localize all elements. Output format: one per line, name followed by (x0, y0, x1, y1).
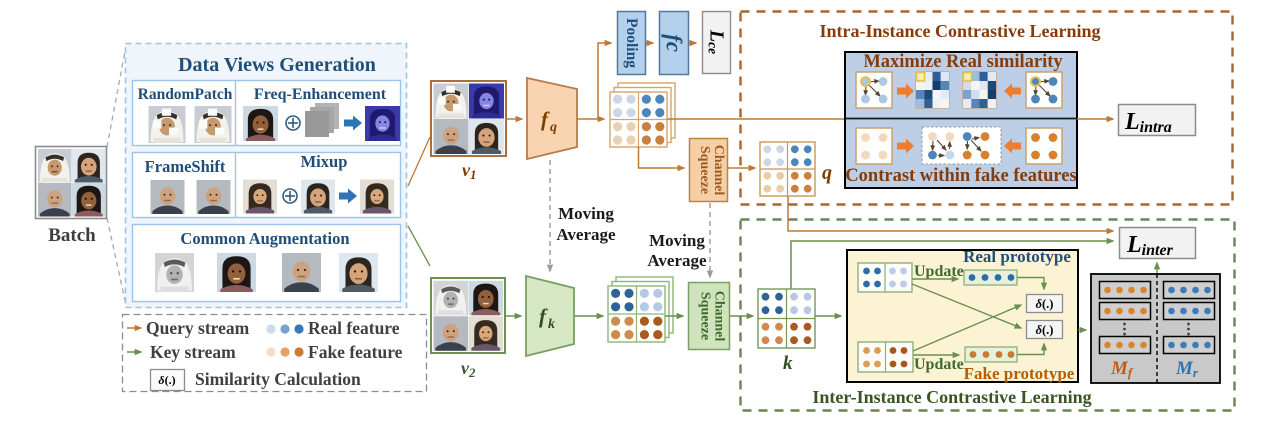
svg-text:Contrast within fake features: Contrast within fake features (845, 166, 1076, 186)
svg-text:v1: v1 (462, 160, 477, 182)
svg-text:Average: Average (556, 225, 616, 244)
svg-text:Real feature: Real feature (308, 318, 400, 338)
svg-text:Moving: Moving (649, 231, 705, 250)
svg-text:δ(.): δ(.) (1036, 323, 1054, 337)
svg-text:δ(.): δ(.) (158, 373, 175, 387)
svg-text:k: k (783, 353, 793, 374)
svg-text:Pooling: Pooling (623, 18, 640, 68)
svg-text:FrameShift: FrameShift (145, 157, 226, 176)
svg-text:fc: fc (662, 34, 687, 52)
svg-text:Average: Average (647, 251, 707, 270)
svg-text:q: q (822, 162, 832, 184)
svg-text:δ(.): δ(.) (1036, 297, 1054, 311)
svg-text:ChannelSqueeze: ChannelSqueeze (698, 291, 727, 342)
svg-text:Inter-Instance Contrastive Lea: Inter-Instance Contrastive Learning (812, 387, 1091, 407)
svg-text:Moving: Moving (558, 204, 614, 223)
svg-text:Maximize Real similarity: Maximize Real similarity (863, 52, 1063, 72)
svg-text:RandomPatch: RandomPatch (138, 86, 233, 103)
svg-text:Update: Update (914, 263, 964, 280)
svg-text:Batch: Batch (48, 225, 96, 246)
svg-text:Similarity Calculation: Similarity Calculation (195, 369, 361, 389)
svg-text:Update: Update (914, 356, 964, 373)
svg-text:Intra-Instance Contrastive Lea: Intra-Instance Contrastive Learning (820, 21, 1101, 41)
svg-text:Mixup: Mixup (301, 152, 348, 171)
svg-text:Key stream: Key stream (150, 342, 236, 362)
svg-text:Query stream: Query stream (146, 318, 250, 338)
svg-text:Fake feature: Fake feature (308, 342, 403, 362)
svg-text:Real prototype: Real prototype (963, 247, 1071, 266)
svg-text:Fake prototype: Fake prototype (964, 364, 1075, 383)
svg-text:Freq-Enhancement: Freq-Enhancement (254, 86, 387, 103)
svg-text:ChannelSqueeze: ChannelSqueeze (697, 145, 726, 196)
svg-text:Data Views Generation: Data Views Generation (178, 54, 376, 76)
svg-text:v2: v2 (461, 358, 476, 380)
svg-text:Common Augmentation: Common Augmentation (180, 229, 349, 248)
